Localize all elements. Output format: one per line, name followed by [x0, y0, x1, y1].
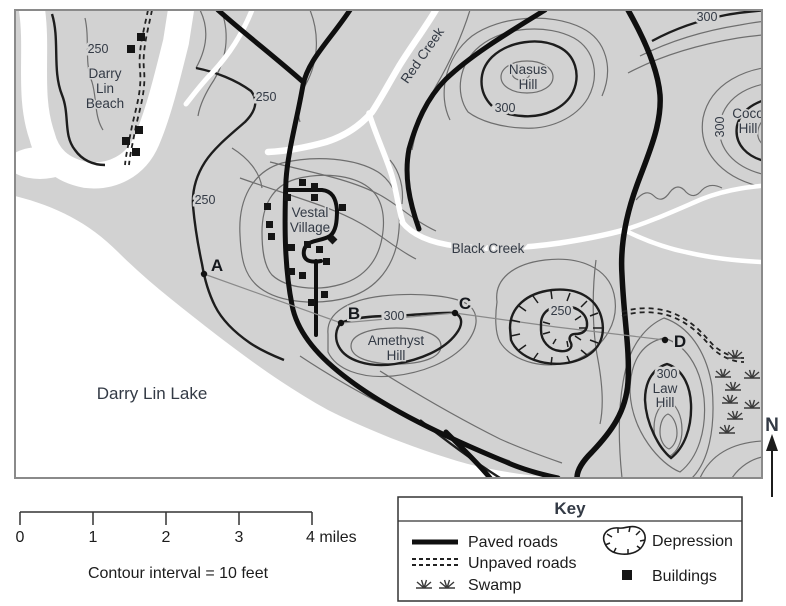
scale-tick-label: 1	[89, 529, 98, 546]
svg-text:Hill: Hill	[519, 77, 538, 92]
point-d-label: D	[674, 332, 686, 351]
map-key: Key Paved roads Unpaved roads Swamp Depr…	[398, 497, 742, 601]
contour-label: 300	[697, 10, 718, 24]
key-swamp-label: Swamp	[468, 577, 521, 594]
contour-label: 250	[256, 90, 277, 104]
building-swatch	[622, 570, 632, 580]
point-c-marker	[452, 310, 458, 316]
point-c-label: C	[459, 294, 471, 313]
place-label-beach: Darry	[89, 66, 122, 81]
place-label-darry-lin-lake: Darry Lin Lake	[97, 384, 208, 403]
svg-text:Hill: Hill	[656, 395, 675, 410]
contour-label: 250	[551, 304, 572, 318]
scale-tick-label: 0	[16, 529, 25, 546]
svg-text:Lin: Lin	[96, 81, 114, 96]
svg-text:Village: Village	[290, 220, 330, 235]
contour-label: 300	[495, 101, 516, 115]
contour-interval-note: Contour interval = 10 feet	[88, 565, 269, 582]
point-a-label: A	[211, 256, 223, 275]
depression-icon	[604, 526, 645, 554]
place-label-nasus-hill: Nasus	[509, 62, 548, 77]
contour-label: 300	[713, 117, 727, 138]
svg-text:Hill: Hill	[387, 348, 406, 363]
key-unpaved-label: Unpaved roads	[468, 555, 577, 572]
contour-label: 250	[195, 193, 216, 207]
north-label: N	[765, 415, 779, 436]
svg-text:Beach: Beach	[86, 96, 124, 111]
point-d-marker	[662, 337, 668, 343]
topographic-map-figure: A B C D 250 250 250 300 300 300 300 300 …	[0, 0, 786, 606]
contour-label: 250	[88, 42, 109, 56]
svg-text:Hill: Hill	[739, 121, 758, 136]
point-b-marker	[338, 320, 344, 326]
key-paved-label: Paved roads	[468, 534, 558, 551]
place-label-black-creek: Black Creek	[452, 241, 525, 256]
scale-tick-label: 3	[235, 529, 244, 546]
place-label-amethyst-hill: Amethyst	[368, 333, 425, 348]
key-buildings-label: Buildings	[652, 568, 717, 585]
map-area: A B C D 250 250 250 300 300 300 300 300 …	[8, 8, 786, 478]
key-title: Key	[554, 499, 586, 518]
bay-mouth	[8, 147, 72, 179]
place-label-law-hill: Law	[653, 381, 678, 396]
place-label-vestal-village: Vestal	[292, 205, 329, 220]
contour-label: 300	[657, 367, 678, 381]
scale-bar-line	[20, 512, 312, 525]
scale-tick-label: 2	[162, 529, 171, 546]
north-arrow-icon: N	[765, 415, 779, 497]
scale-end-label: 4 miles	[306, 529, 357, 546]
scale-bar: 0 1 2 3 4 miles Contour interval = 10 fe…	[16, 512, 357, 582]
key-depression-label: Depression	[652, 533, 733, 550]
map-canvas: A B C D 250 250 250 300 300 300 300 300 …	[0, 0, 786, 606]
place-label-coco-hill: Coco	[732, 106, 764, 121]
contour-label: 300	[384, 309, 405, 323]
point-b-label: B	[348, 304, 360, 323]
point-a-marker	[201, 271, 207, 277]
